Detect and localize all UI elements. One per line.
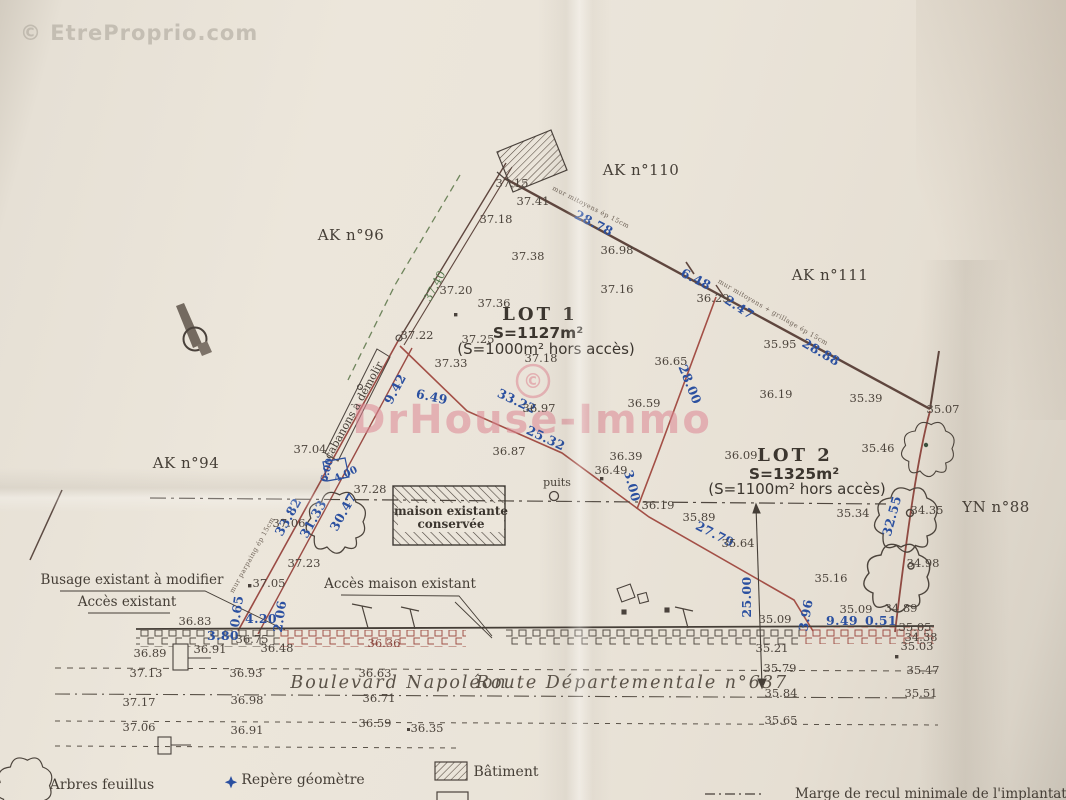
parcel-ak94: AK n°94 <box>152 454 220 472</box>
map-label: 37.22 <box>401 328 434 342</box>
puits-well-icon <box>550 492 559 501</box>
map-label: 34.98 <box>907 556 940 570</box>
map-label: 36.29 <box>697 291 730 305</box>
map-label: 36.98 <box>231 693 264 707</box>
legend-repere-star-icon <box>225 776 237 788</box>
map-label: 35.89 <box>683 510 716 524</box>
young-tree-icon <box>352 604 693 629</box>
lot2-area-excl: (S=1100m² hors accès) <box>708 480 886 498</box>
map-label: 36.59 <box>628 396 661 410</box>
map-label: 35.47 <box>907 663 940 677</box>
map-label: 36.63 <box>359 666 392 680</box>
road-dashed-2 <box>55 721 938 725</box>
legend-batiment: Bâtiment <box>474 764 539 780</box>
tree-icon <box>901 422 954 476</box>
note-acces-maison: Accès maison existant <box>323 576 476 592</box>
lot2-title: LOT 2 <box>757 445 833 466</box>
map-label: 36.97 <box>523 401 556 415</box>
legend-tree-icon <box>0 758 52 800</box>
map-label: 36.93 <box>230 666 263 680</box>
legend-repere: Repère géomètre <box>241 772 364 788</box>
north-arrow-icon <box>176 303 212 356</box>
map-label: 37.33 <box>435 356 468 370</box>
survey-plan-drawing: © EtreProprio.com©DrHouse-ImmoAK n°96AK … <box>0 0 1066 800</box>
map-label: 37.28 <box>354 482 387 496</box>
legend-marge: Marge de recul minimale de l'implantatio… <box>795 786 1066 800</box>
map-label: 35.39 <box>850 391 883 405</box>
map-label: 36.83 <box>179 614 212 628</box>
parcel-yn88: YN n°88 <box>961 498 1030 516</box>
parcel-ak96: AK n°96 <box>317 226 385 244</box>
map-label: 34.35 <box>911 503 944 517</box>
legend-arbres: Arbres feuillus <box>49 777 155 793</box>
map-label: 3.80 <box>207 628 239 643</box>
map-label: 35.64 <box>722 536 755 550</box>
legend-batiment-swatch-2 <box>437 792 468 800</box>
map-label: 35.09 <box>840 602 873 616</box>
map-label: 37.13 <box>130 666 163 680</box>
note-busage: Busage existant à modifier <box>41 572 224 588</box>
map-label: 35.07 <box>927 402 960 416</box>
road-dashed-3 <box>55 746 462 748</box>
map-label: 35.65 <box>765 713 798 727</box>
road-departementale-637: Route Départementale n°637 <box>475 673 788 693</box>
map-label: 37.20 <box>440 283 473 297</box>
map-label: 36.35 <box>411 721 444 735</box>
map-label: 37.41 <box>517 194 550 208</box>
map-label: 37.36 <box>478 296 511 310</box>
map-label: 36.91 <box>231 723 264 737</box>
map-label: 35.51 <box>905 686 938 700</box>
note-puits: puits <box>543 476 571 489</box>
map-label: 36.71 <box>363 691 396 705</box>
note-acces-existant: Accès existant <box>77 594 177 610</box>
map-label: 37.06 <box>123 720 156 734</box>
map-label: 37.15 <box>496 176 529 190</box>
watermark-etreproprio: © EtreProprio.com <box>20 21 258 45</box>
map-label: 35.09 <box>759 612 792 626</box>
map-label: 36.89 <box>134 646 167 660</box>
map-label: 36.59 <box>359 716 392 730</box>
survey-plan-photo: © EtreProprio.com©DrHouse-ImmoAK n°96AK … <box>0 0 1066 800</box>
note-maison-1: maison existante <box>394 504 508 518</box>
map-label: 36.19 <box>642 498 675 512</box>
map-label: 35.46 <box>862 441 895 455</box>
map-label: 36.91 <box>194 642 227 656</box>
small-structures <box>617 584 669 614</box>
map-label: 37.06 <box>273 516 306 530</box>
map-label: 37.18 <box>480 212 513 226</box>
map-label: 36.36 <box>368 636 401 650</box>
map-label: 37.38 <box>512 249 545 263</box>
parcel-ak111: AK n°111 <box>791 266 869 284</box>
map-label: 0.65 <box>227 594 246 628</box>
map-label: 35.95 <box>764 337 797 351</box>
west-boundary-line-2 <box>404 167 512 345</box>
map-label: 36.87 <box>493 444 526 458</box>
map-label: 36.49 <box>595 463 628 477</box>
legend-building-symbol <box>158 737 171 754</box>
lot1-title: LOT 1 <box>502 304 578 325</box>
watermark-copyright-symbol: © <box>523 369 543 393</box>
road-axis-dashdot <box>55 694 938 698</box>
map-label: 35.21 <box>756 641 789 655</box>
map-label: 35.79 <box>764 661 797 675</box>
map-label: 36.65 <box>655 354 688 368</box>
note-maison-2: conservée <box>418 517 485 531</box>
map-label: 36.48 <box>261 641 294 655</box>
corner-spur-line <box>930 351 939 409</box>
tree-dot <box>924 443 928 447</box>
map-label: 36.09 <box>725 448 758 462</box>
map-label: 35.84 <box>765 686 798 700</box>
map-label: 37.16 <box>601 282 634 296</box>
map-label: 37.04 <box>294 442 327 456</box>
recul-axis-dashdot <box>150 498 886 504</box>
map-label: 37.17 <box>123 695 156 709</box>
map-label: 35.16 <box>815 571 848 585</box>
parcel-ak110: AK n°110 <box>602 161 680 179</box>
map-label: 37.23 <box>288 556 321 570</box>
small-building-left <box>173 644 188 670</box>
ditch-line <box>30 490 62 560</box>
map-label: 37.18 <box>525 351 558 365</box>
map-label: 35.03 <box>901 639 934 653</box>
map-label: 36.98 <box>601 243 634 257</box>
map-label: 25.00 <box>739 576 754 617</box>
map-label: 36.19 <box>760 387 793 401</box>
map-label: 37.25 <box>462 332 495 346</box>
map-label: 37.05 <box>253 576 286 590</box>
map-label: 34.89 <box>885 601 918 615</box>
map-label: 36.39 <box>610 449 643 463</box>
map-label: 6.48 <box>678 265 713 293</box>
map-label: 35.34 <box>837 506 870 520</box>
legend-batiment-swatch <box>435 762 467 780</box>
